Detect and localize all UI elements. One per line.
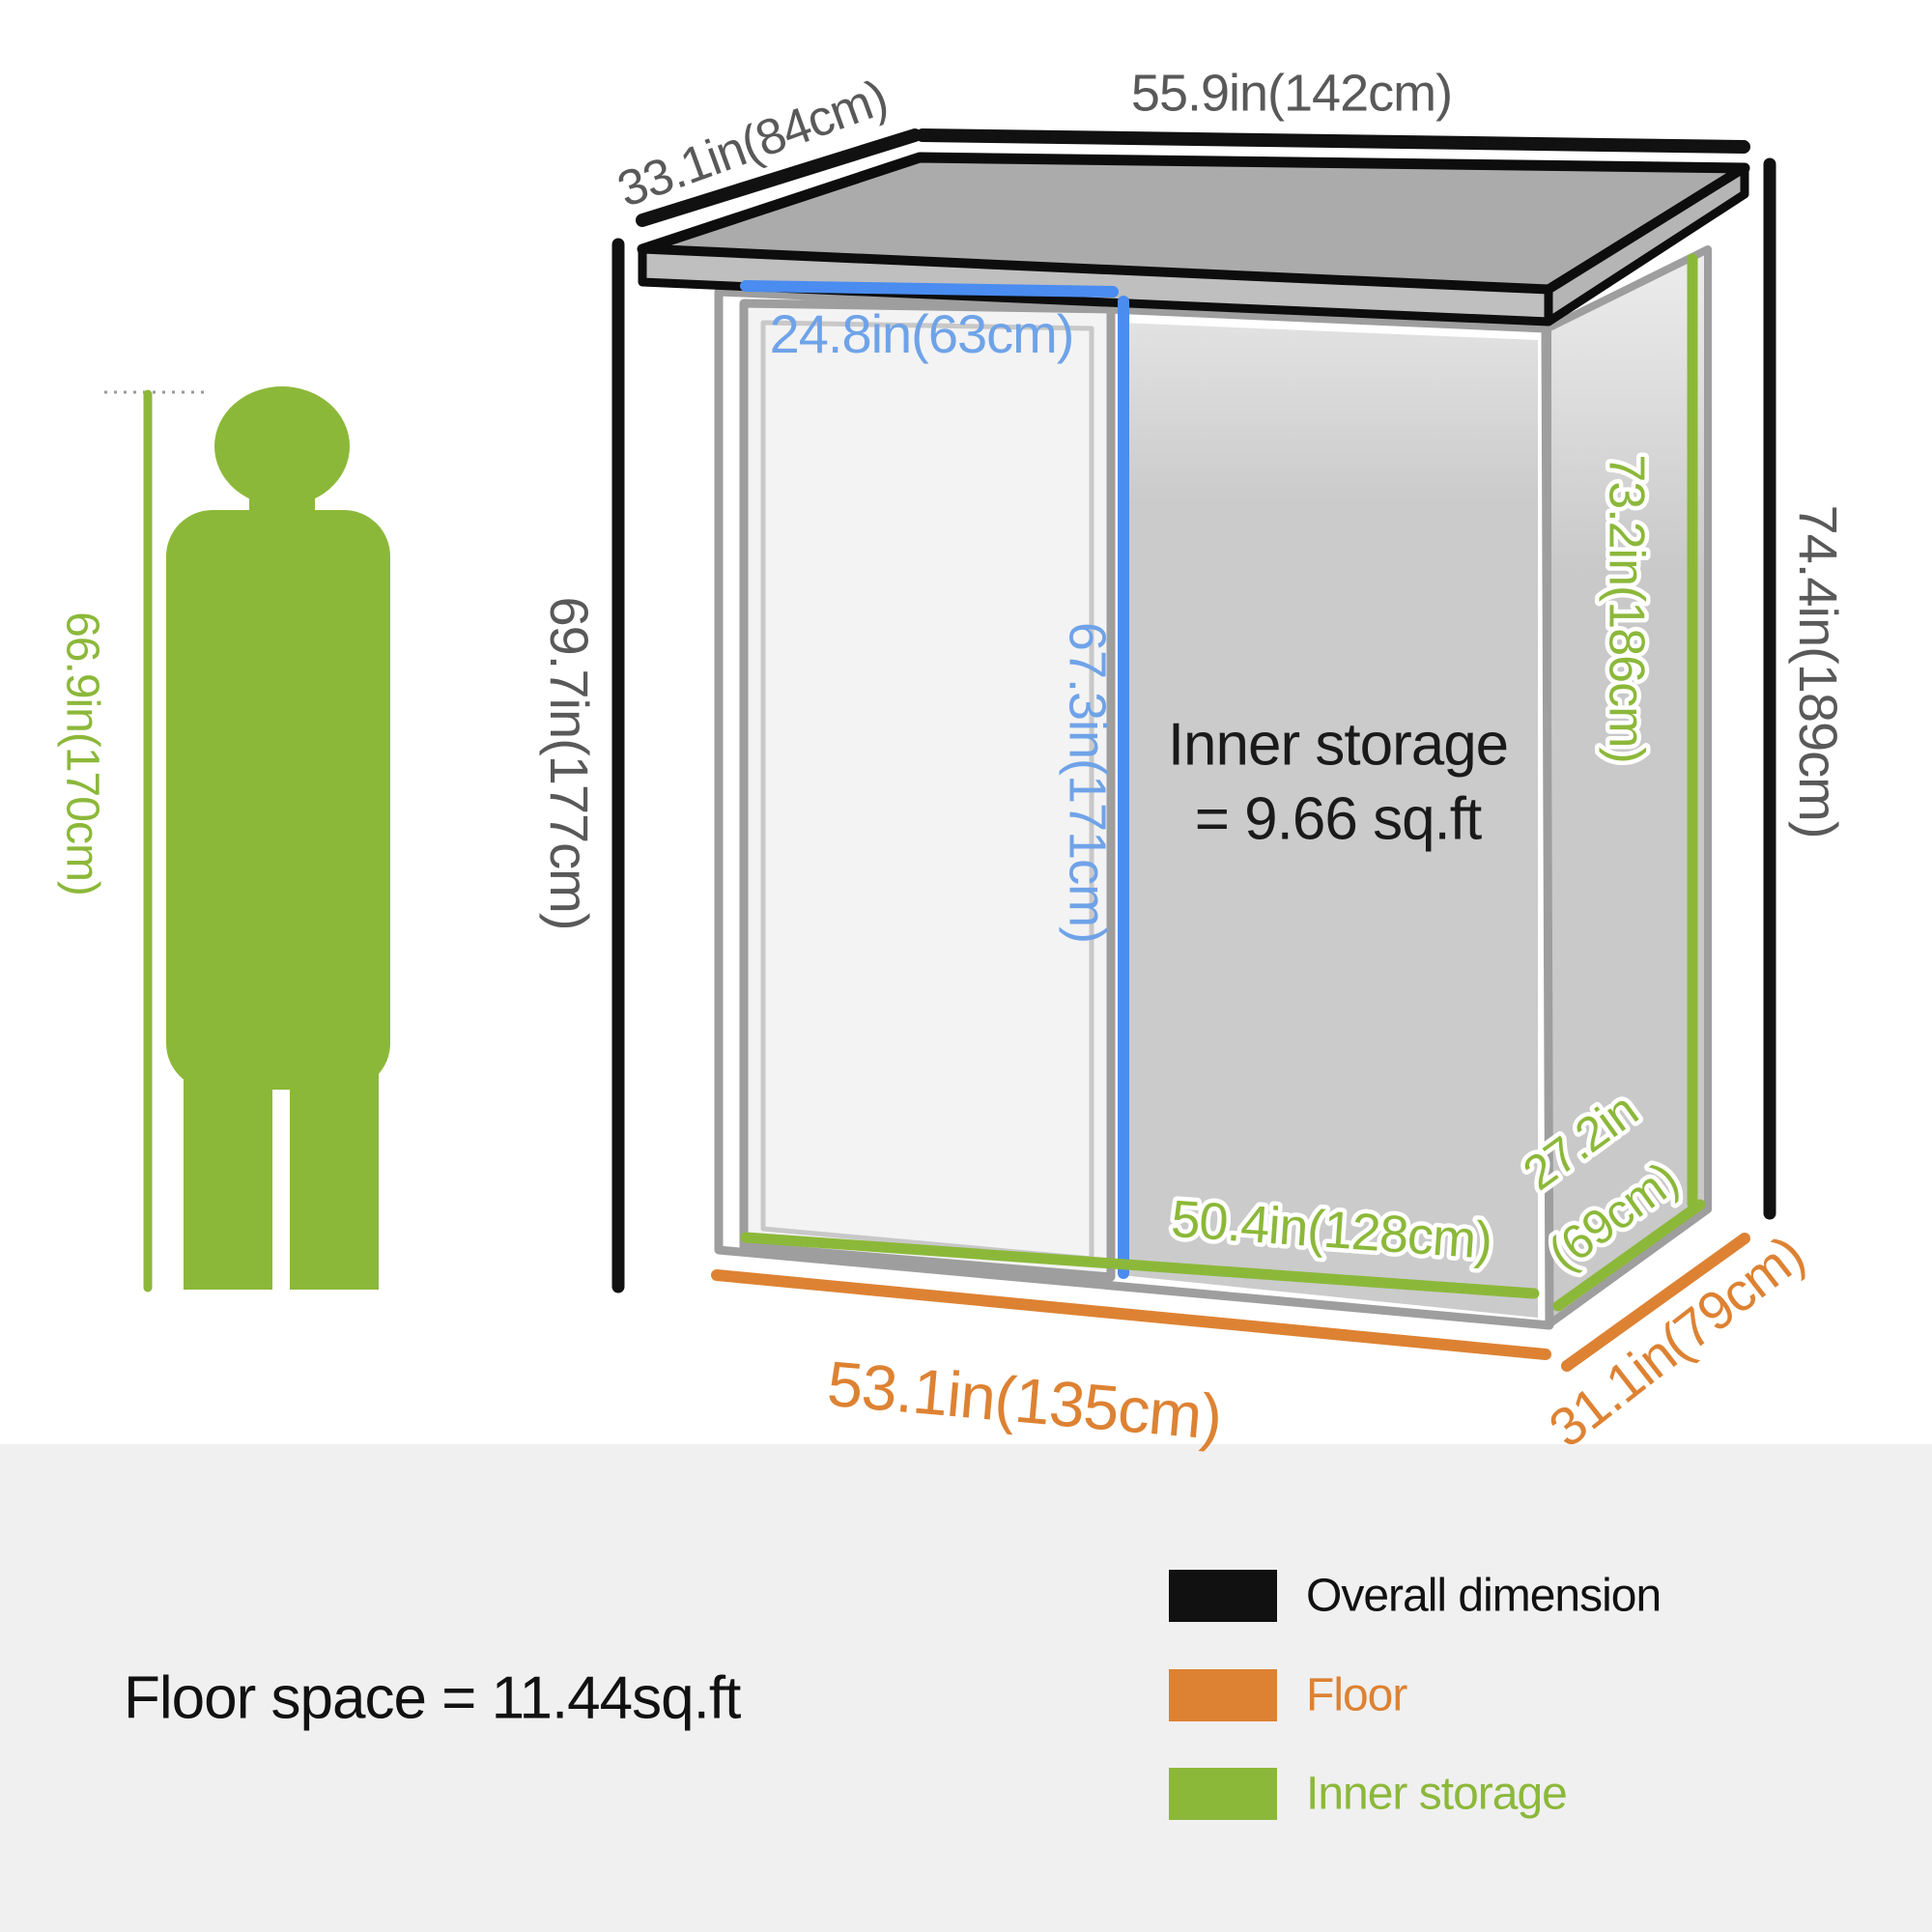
label-inner-height: 73.2in(186cm) [1598,454,1654,762]
label-front-height: 69.7in(177cm) [539,597,600,930]
label-inner-storage-line2: = 9.66 sq.ft [1195,785,1482,852]
legend-swatch-overall [1169,1570,1277,1622]
label-floor-width: 53.1in(135cm) [825,1348,1225,1453]
diagram-svg: 66.9in(170cm) 55.9in(142cm) [0,0,1932,1932]
dim-line-door-width [746,286,1113,292]
legend-label-floor: Floor [1306,1670,1407,1721]
legend-swatch-floor [1169,1669,1277,1721]
shed-dimension-diagram: 66.9in(170cm) 55.9in(142cm) [0,0,1932,1932]
label-person-height: 66.9in(170cm) [56,611,107,895]
legend-swatch-inner-storage [1169,1768,1277,1820]
label-overall-width: 55.9in(142cm) [1131,64,1452,122]
shed-door [744,303,1111,1277]
floor-space-text: Floor space = 11.44sq.ft [124,1664,741,1731]
person-right-leg [290,1043,379,1290]
person-left-leg [184,1043,272,1290]
label-door-width: 24.8in(63cm) [770,303,1074,364]
label-inner-storage-line1: Inner storage [1168,711,1508,778]
legend-label-inner-storage: Inner storage [1306,1769,1567,1820]
person-silhouette [166,386,390,1290]
legend-label-overall: Overall dimension [1306,1571,1661,1622]
label-overall-height: 74.4in(189cm) [1788,505,1849,838]
dim-line-overall-width [923,135,1744,147]
person-torso [166,510,390,1090]
label-door-height: 67.3in(171cm) [1059,622,1117,943]
